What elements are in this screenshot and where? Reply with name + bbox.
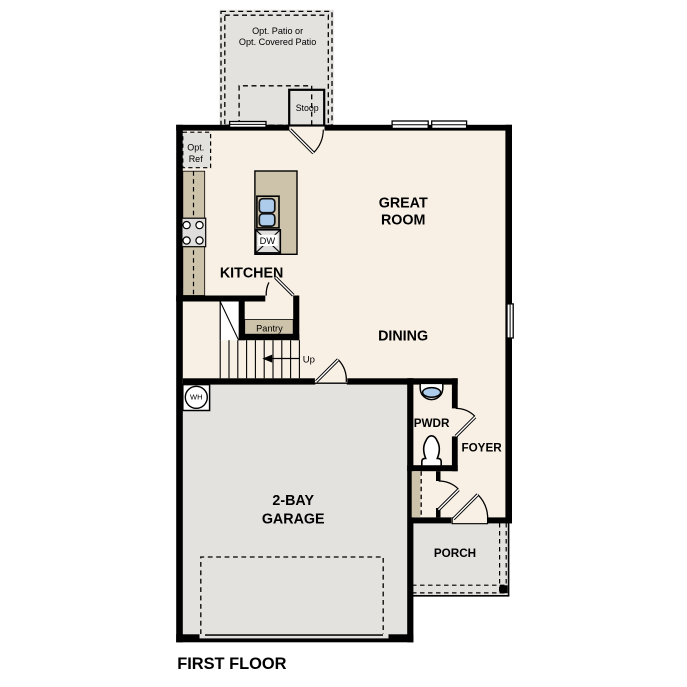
svg-text:GARAGE: GARAGE [262,512,325,528]
svg-text:Up: Up [303,354,315,365]
svg-text:FOYER: FOYER [461,441,502,454]
svg-text:FIRST FLOOR: FIRST FLOOR [177,655,286,673]
svg-text:KITCHEN: KITCHEN [220,266,284,282]
svg-text:WH: WH [190,393,203,402]
svg-text:DW: DW [260,236,276,246]
svg-text:GREAT: GREAT [379,195,428,211]
svg-text:DINING: DINING [378,328,428,344]
svg-text:Opt. Patio or: Opt. Patio or [252,26,303,36]
svg-text:2-BAY: 2-BAY [272,493,314,509]
svg-text:Ref: Ref [189,154,204,164]
svg-text:ROOM: ROOM [381,212,425,228]
svg-text:Opt. Covered Patio: Opt. Covered Patio [239,37,316,47]
svg-text:Stoop: Stoop [296,103,319,113]
svg-text:PWDR: PWDR [414,417,450,430]
svg-text:Opt.: Opt. [187,143,204,153]
svg-text:Pantry: Pantry [256,324,283,334]
svg-text:PORCH: PORCH [434,547,476,560]
